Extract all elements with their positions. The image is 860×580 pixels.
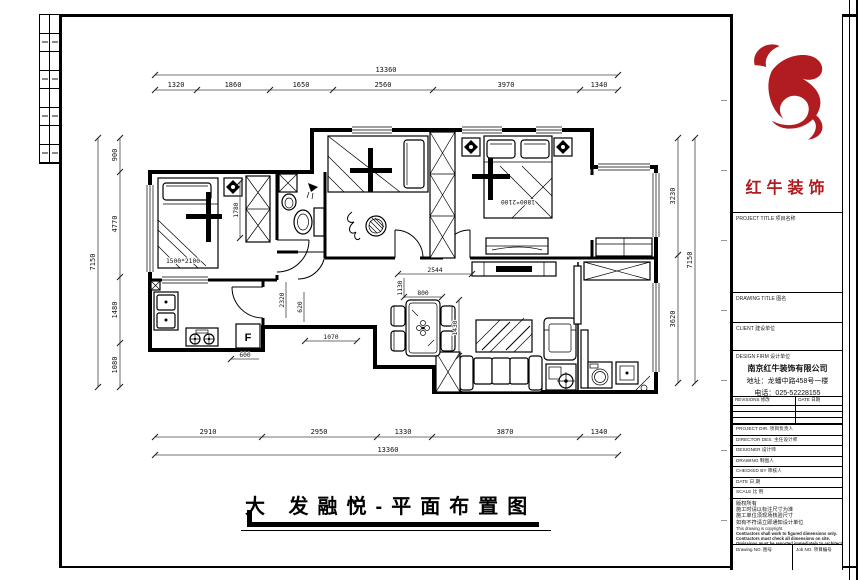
bedside-shadow xyxy=(368,148,373,192)
dim-label: 7150 xyxy=(89,254,97,271)
sheet-edge-line xyxy=(849,0,850,580)
mop-basin-icon xyxy=(616,362,650,392)
drawing-title: 大 发融悦-平面布置图 xyxy=(245,490,555,531)
shower-icon xyxy=(307,183,318,199)
washing-machine-icon xyxy=(588,362,612,388)
firm-name: 南京红牛装饰有限公司 xyxy=(733,363,842,374)
tv-cabinet-icon xyxy=(472,262,556,276)
flue-icon xyxy=(279,174,297,192)
dim-label: 1070 xyxy=(323,334,338,341)
storage-cabinet-icon xyxy=(584,262,650,280)
fold-mark xyxy=(721,170,727,171)
dim-label: 2560 xyxy=(375,81,392,89)
nightstand-lamp-icon xyxy=(462,138,480,156)
side-table-lamp-icon xyxy=(546,364,576,390)
wardrobe-icon xyxy=(246,176,270,242)
fold-mark xyxy=(721,240,727,241)
dining-chair-icon xyxy=(391,306,405,326)
window-icon xyxy=(462,125,502,135)
design-firm-section: DESIGN FIRM 设计单位 南京红牛装饰有限公司 地址：龙蟠中路458号一… xyxy=(733,350,842,396)
window-icon xyxy=(162,275,208,285)
nightstand-lamp-icon xyxy=(554,138,572,156)
room-bedroom-left: 1500*2100 xyxy=(158,176,270,268)
stool-icon xyxy=(366,216,386,236)
bedside-shadow xyxy=(206,192,211,242)
fold-mark xyxy=(721,380,727,381)
dim-label: 2950 xyxy=(311,428,328,436)
dim-label: 620 xyxy=(297,301,304,313)
bed-size-label: 1500*2100 xyxy=(166,258,200,265)
room-closet xyxy=(596,238,652,256)
dim-label: 1430 xyxy=(452,320,459,335)
dining-set xyxy=(391,300,455,356)
dim-label: 600 xyxy=(239,352,251,359)
rug-icon xyxy=(476,318,532,352)
door-arc xyxy=(395,230,423,258)
ceiling-lamp-icon xyxy=(224,178,242,196)
washbasin-icon xyxy=(282,194,296,210)
dim-label: 2910 xyxy=(200,428,217,436)
drawing-number-section: Drawing NO. 图号 Job NO. 项目编号 xyxy=(733,544,842,570)
window-icon xyxy=(598,162,650,172)
dim-label: 1340 xyxy=(591,428,608,436)
fold-mark xyxy=(721,450,727,451)
dim-label: 1480 xyxy=(111,302,119,319)
sink-icon xyxy=(154,292,178,330)
fridge-label: F xyxy=(245,332,252,344)
fold-mark xyxy=(721,100,727,101)
room-bedroom-master: 1800*2100 xyxy=(462,136,572,254)
field-scale: SCALE 比 例 xyxy=(733,488,842,498)
title-underline-thin xyxy=(241,530,551,531)
plant-icon xyxy=(348,212,360,240)
field-project-dir: PROJECT DIR. 项目负责人 xyxy=(733,425,842,436)
company-name: 红牛装饰 xyxy=(733,174,842,198)
field-date: DATE 日 期 xyxy=(733,478,842,489)
bed-size-label: 1800*2100 xyxy=(501,198,535,205)
dim-label: 3620 xyxy=(669,311,677,328)
bull-logo-icon xyxy=(747,36,833,146)
field-drawing: DRAWING 制图人 xyxy=(733,457,842,468)
room-bathroom xyxy=(279,174,324,236)
dim-label: 13360 xyxy=(377,446,398,454)
field-director: DIRECTOR DES. 主任设计师 xyxy=(733,436,842,447)
window-icon xyxy=(145,185,155,272)
sofa-icon xyxy=(460,356,542,392)
window-icon xyxy=(352,125,392,135)
title-underline-bar xyxy=(247,522,539,527)
bay-bench-icon xyxy=(486,238,548,254)
signature-cell xyxy=(40,15,50,34)
dim-label: 7150 xyxy=(686,252,694,269)
bedside-shadow xyxy=(488,158,493,200)
firm-address: 地址：龙蟠中路458号一楼 xyxy=(733,376,842,386)
dim-label: 800 xyxy=(417,290,429,297)
title-block: 红牛装饰 PROJECT TITLE 项目名称 DRAWING TITLE 图名… xyxy=(730,14,843,570)
armchair-icon xyxy=(544,318,576,360)
door-arc xyxy=(277,240,309,272)
date-header: DATE 日期 xyxy=(796,397,842,406)
sheet-edge-line xyxy=(856,0,858,580)
dim-label: 3230 xyxy=(669,188,677,205)
stove-icon xyxy=(186,328,218,346)
drawing-title-section: DRAWING TITLE 图名 xyxy=(733,292,842,322)
staff-fields: PROJECT DIR. 项目负责人 DIRECTOR DES. 主任设计师 D… xyxy=(733,424,842,498)
window-icon xyxy=(651,173,661,237)
room-balcony xyxy=(574,262,650,392)
cad-floorplan-sheet: { "sheet": { "logo_text": "红牛装饰", "proje… xyxy=(0,0,860,580)
room-study xyxy=(328,136,428,240)
dim-label: 1320 xyxy=(168,81,185,89)
dim-label: 900 xyxy=(111,149,119,162)
client-section: CLIENT 建设单位 xyxy=(733,322,842,350)
dining-table-icon xyxy=(406,300,440,356)
window-icon xyxy=(651,283,661,372)
dim-label: 1860 xyxy=(225,81,242,89)
fold-mark xyxy=(721,520,727,521)
dim-label: 3870 xyxy=(497,428,514,436)
corner-box-icon xyxy=(151,281,160,290)
drawing-no: Drawing NO. 图号 xyxy=(733,545,793,570)
copyright-notes: 版权所有 施工时请以标注尺寸为准 施工单位须现场核验尺寸 如有不符请立即通知设计… xyxy=(733,498,842,544)
dim-label: 1780 xyxy=(233,202,240,217)
single-bed-icon xyxy=(328,136,428,192)
dining-chair-icon xyxy=(391,331,405,351)
dim-label: 2320 xyxy=(279,292,286,307)
revisions-table: REVISIONS 修改 DATE 日期 xyxy=(733,396,842,424)
project-title-section: PROJECT TITLE 项目名称 xyxy=(733,212,842,292)
dim-label: 1080 xyxy=(111,357,119,374)
drawing-title-text: 大 发融悦-平面布置图 xyxy=(245,490,555,519)
field-checked-by: CHECKED BY 审核人 xyxy=(733,467,842,478)
signature-strip xyxy=(39,14,61,164)
firm-phone: 电话：025-52228155 xyxy=(733,388,842,396)
wardrobe-icon xyxy=(430,132,455,258)
door-arc xyxy=(298,252,325,279)
bedside-shadow xyxy=(186,214,222,219)
dim-label: 1340 xyxy=(591,81,608,89)
dim-label: 4770 xyxy=(111,216,119,233)
toilet-icon xyxy=(294,208,324,236)
room-kitchen: F xyxy=(151,281,260,348)
dim-label: 2544 xyxy=(427,267,442,274)
fold-mark xyxy=(721,310,727,311)
dim-label: 1130 xyxy=(397,280,404,295)
dim-label: 3970 xyxy=(498,81,515,89)
door-arc xyxy=(232,287,263,318)
dim-label: 1330 xyxy=(395,428,412,436)
field-designer: DESIGNER 设计师 xyxy=(733,446,842,457)
fridge-icon: F xyxy=(236,324,260,348)
window-icon xyxy=(536,125,562,135)
dim-label: 1650 xyxy=(293,81,310,89)
revisions-header: REVISIONS 修改 xyxy=(733,397,796,406)
company-logo: 红牛装饰 xyxy=(733,14,842,212)
job-no: Job NO. 项目编号 xyxy=(793,545,842,570)
dim-label: 13360 xyxy=(375,66,396,74)
